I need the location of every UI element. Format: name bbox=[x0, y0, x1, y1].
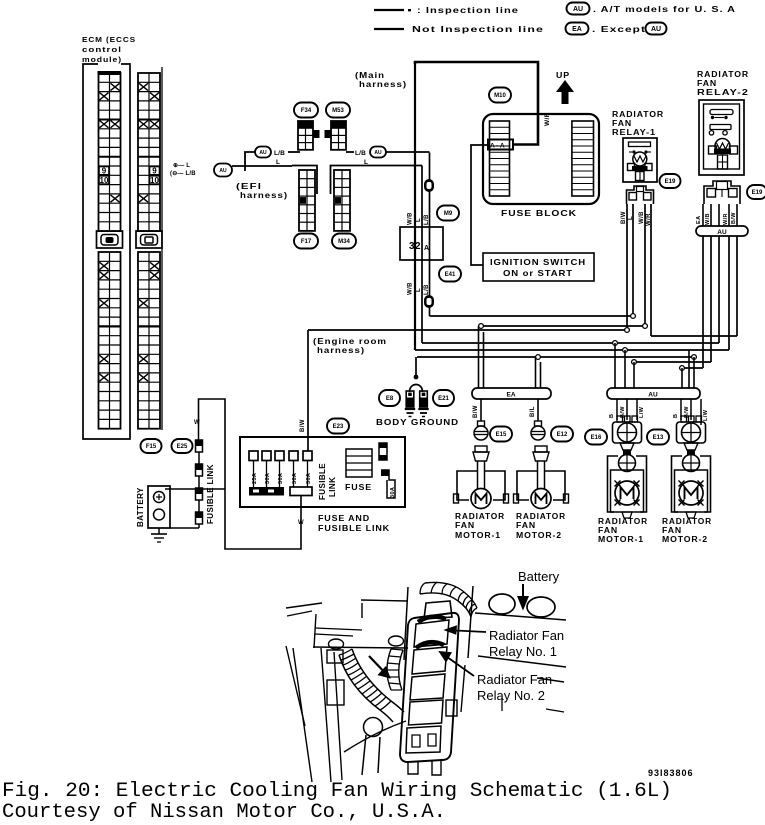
svg-text:FUSE: FUSE bbox=[345, 482, 372, 492]
svg-text:W: W bbox=[194, 420, 200, 426]
svg-text:RADIATOR: RADIATOR bbox=[612, 110, 664, 119]
svg-text:UP: UP bbox=[556, 71, 570, 80]
svg-text:(⊖— L/B: (⊖— L/B bbox=[170, 171, 196, 177]
svg-text:. A/T models for U. S. A: . A/T models for U. S. A bbox=[593, 4, 736, 14]
svg-text:B: B bbox=[609, 414, 615, 418]
svg-text:Relay No. 1: Relay No. 1 bbox=[489, 644, 557, 659]
svg-text:L/B: L/B bbox=[424, 214, 430, 225]
svg-text:FUSIBLE LINK: FUSIBLE LINK bbox=[318, 523, 390, 533]
svg-text:E16: E16 bbox=[591, 435, 602, 441]
svg-text:L: L bbox=[416, 288, 422, 292]
svg-text:M10: M10 bbox=[494, 93, 506, 99]
svg-text:L: L bbox=[276, 159, 281, 166]
svg-text:Radiator Fan: Radiator Fan bbox=[489, 628, 564, 643]
svg-text:FAN: FAN bbox=[516, 521, 536, 530]
svg-text:control: control bbox=[82, 45, 122, 54]
svg-text:M34: M34 bbox=[338, 239, 350, 245]
svg-text:L: L bbox=[628, 216, 634, 220]
svg-text:FUSIBLE LINK: FUSIBLE LINK bbox=[206, 464, 215, 524]
svg-text:Battery: Battery bbox=[518, 569, 560, 584]
svg-text:AU: AU bbox=[651, 26, 661, 33]
svg-text:AU: AU bbox=[717, 229, 727, 236]
svg-text:M53: M53 bbox=[332, 108, 344, 114]
svg-text:W/R: W/R bbox=[646, 213, 652, 226]
svg-text:B: B bbox=[673, 414, 679, 418]
svg-text:⊕— L: ⊕— L bbox=[173, 163, 190, 169]
svg-text:MOTOR-1: MOTOR-1 bbox=[598, 535, 644, 544]
svg-text:RELAY-2: RELAY-2 bbox=[697, 88, 749, 97]
svg-text:W/B: W/B bbox=[408, 282, 414, 295]
svg-text:FUSE AND: FUSE AND bbox=[318, 513, 370, 523]
svg-text:BODY GROUND: BODY GROUND bbox=[376, 417, 459, 427]
svg-text:FAN: FAN bbox=[598, 526, 618, 535]
svg-text:EA: EA bbox=[506, 391, 515, 398]
svg-text:module): module) bbox=[82, 55, 122, 64]
svg-text:F15: F15 bbox=[146, 444, 157, 450]
svg-text:L/B: L/B bbox=[355, 150, 366, 157]
svg-text:MOTOR-2: MOTOR-2 bbox=[662, 535, 708, 544]
svg-text:AU: AU bbox=[259, 150, 267, 156]
svg-text:B/W: B/W bbox=[731, 212, 737, 224]
svg-text:93I83806: 93I83806 bbox=[648, 768, 694, 778]
svg-text:30A: 30A bbox=[278, 473, 284, 484]
svg-text:MOTOR-1: MOTOR-1 bbox=[455, 531, 501, 540]
svg-text:B/W: B/W bbox=[473, 405, 479, 418]
svg-text:harness): harness) bbox=[317, 346, 365, 355]
svg-text:AU: AU bbox=[219, 168, 227, 174]
svg-text:L: L bbox=[364, 159, 369, 166]
svg-text:10: 10 bbox=[150, 176, 159, 185]
svg-text:RADIATOR: RADIATOR bbox=[598, 517, 648, 526]
svg-text:30A: 30A bbox=[306, 473, 312, 484]
svg-text:E15: E15 bbox=[496, 432, 507, 438]
svg-text:9: 9 bbox=[102, 167, 107, 176]
svg-text:E8: E8 bbox=[386, 396, 394, 402]
svg-text:E12: E12 bbox=[557, 432, 568, 438]
svg-text:W: W bbox=[298, 520, 304, 526]
svg-text:(EFI: (EFI bbox=[236, 182, 262, 191]
svg-text:. Except: . Except bbox=[592, 24, 646, 34]
svg-text:30A: 30A bbox=[265, 473, 271, 484]
svg-text:ON or START: ON or START bbox=[503, 268, 573, 278]
svg-text:EA: EA bbox=[572, 26, 582, 33]
svg-text:Relay No. 2: Relay No. 2 bbox=[477, 688, 545, 703]
svg-text:F34: F34 bbox=[301, 108, 312, 114]
svg-text:L/W: L/W bbox=[639, 406, 645, 418]
svg-text:A·A: A·A bbox=[490, 143, 506, 150]
svg-text:harness): harness) bbox=[240, 191, 288, 200]
svg-text:M9: M9 bbox=[444, 211, 453, 217]
svg-text:BATTERY: BATTERY bbox=[136, 487, 145, 527]
svg-text:W/B: W/B bbox=[408, 212, 414, 225]
svg-text:L: L bbox=[416, 218, 422, 222]
svg-text:E25: E25 bbox=[177, 444, 188, 450]
svg-text:W/B: W/B bbox=[639, 211, 645, 224]
svg-text:FAN: FAN bbox=[612, 119, 632, 128]
svg-text:F17: F17 bbox=[301, 239, 312, 245]
svg-text:AU: AU bbox=[573, 6, 583, 13]
svg-text:9: 9 bbox=[152, 167, 157, 176]
svg-text:B/W: B/W bbox=[621, 211, 627, 224]
svg-text:25A: 25A bbox=[252, 473, 258, 484]
svg-text:FUSE BLOCK: FUSE BLOCK bbox=[501, 208, 577, 218]
svg-text:E19: E19 bbox=[665, 179, 676, 185]
svg-text:L/W: L/W bbox=[703, 409, 709, 421]
svg-text:Fig. 20: Electric Cooling Fan: Fig. 20: Electric Cooling Fan Wiring Sch… bbox=[2, 780, 672, 803]
svg-text:RADIATOR: RADIATOR bbox=[516, 512, 566, 521]
svg-text:LINK: LINK bbox=[328, 477, 337, 497]
svg-text:FAN: FAN bbox=[697, 79, 717, 88]
svg-text:AU: AU bbox=[374, 150, 382, 156]
svg-text:E13: E13 bbox=[653, 435, 664, 441]
svg-text:30A: 30A bbox=[390, 487, 396, 498]
svg-text:: Inspection line: : Inspection line bbox=[417, 5, 519, 15]
svg-text:Radiator Fan: Radiator Fan bbox=[477, 672, 552, 687]
svg-text:FUSIBLE: FUSIBLE bbox=[318, 463, 327, 500]
svg-text:(Main: (Main bbox=[355, 71, 385, 80]
svg-text:Courtesy of Nissan Motor Co.,: Courtesy of Nissan Motor Co., U.S.A. bbox=[2, 801, 446, 824]
svg-text:(Engine room: (Engine room bbox=[313, 337, 387, 346]
svg-text:ECM (ECCS: ECM (ECCS bbox=[82, 35, 136, 44]
svg-text:MOTOR-2: MOTOR-2 bbox=[516, 531, 562, 540]
svg-text:30A: 30A bbox=[292, 473, 298, 484]
svg-text:A: A bbox=[424, 245, 429, 252]
svg-text:AU: AU bbox=[648, 391, 658, 398]
svg-text:32: 32 bbox=[409, 241, 421, 252]
svg-text:E19: E19 bbox=[752, 190, 763, 196]
svg-text:L/B: L/B bbox=[274, 150, 285, 157]
svg-text:harness): harness) bbox=[359, 80, 407, 89]
svg-text:B/L: B/L bbox=[530, 406, 536, 417]
svg-text:10: 10 bbox=[100, 176, 109, 185]
svg-text:E21: E21 bbox=[438, 396, 449, 402]
svg-text:B/W: B/W bbox=[300, 419, 306, 432]
svg-text:Not Inspection line: Not Inspection line bbox=[412, 24, 544, 34]
svg-text:E41: E41 bbox=[445, 272, 456, 278]
svg-text:RELAY-1: RELAY-1 bbox=[612, 128, 656, 137]
svg-text:L/B: L/B bbox=[424, 284, 430, 295]
svg-text:RADIATOR: RADIATOR bbox=[662, 517, 712, 526]
svg-text:IGNITION SWITCH: IGNITION SWITCH bbox=[490, 257, 586, 267]
svg-text:FAN: FAN bbox=[662, 526, 682, 535]
svg-text:FAN: FAN bbox=[455, 521, 475, 530]
svg-text:W/B: W/B bbox=[705, 213, 711, 225]
svg-text:E23: E23 bbox=[333, 424, 344, 430]
svg-text:RADIATOR: RADIATOR bbox=[455, 512, 505, 521]
svg-text:W/R: W/R bbox=[723, 213, 729, 225]
svg-text:RADIATOR: RADIATOR bbox=[697, 70, 749, 79]
svg-text:EA: EA bbox=[696, 216, 702, 224]
